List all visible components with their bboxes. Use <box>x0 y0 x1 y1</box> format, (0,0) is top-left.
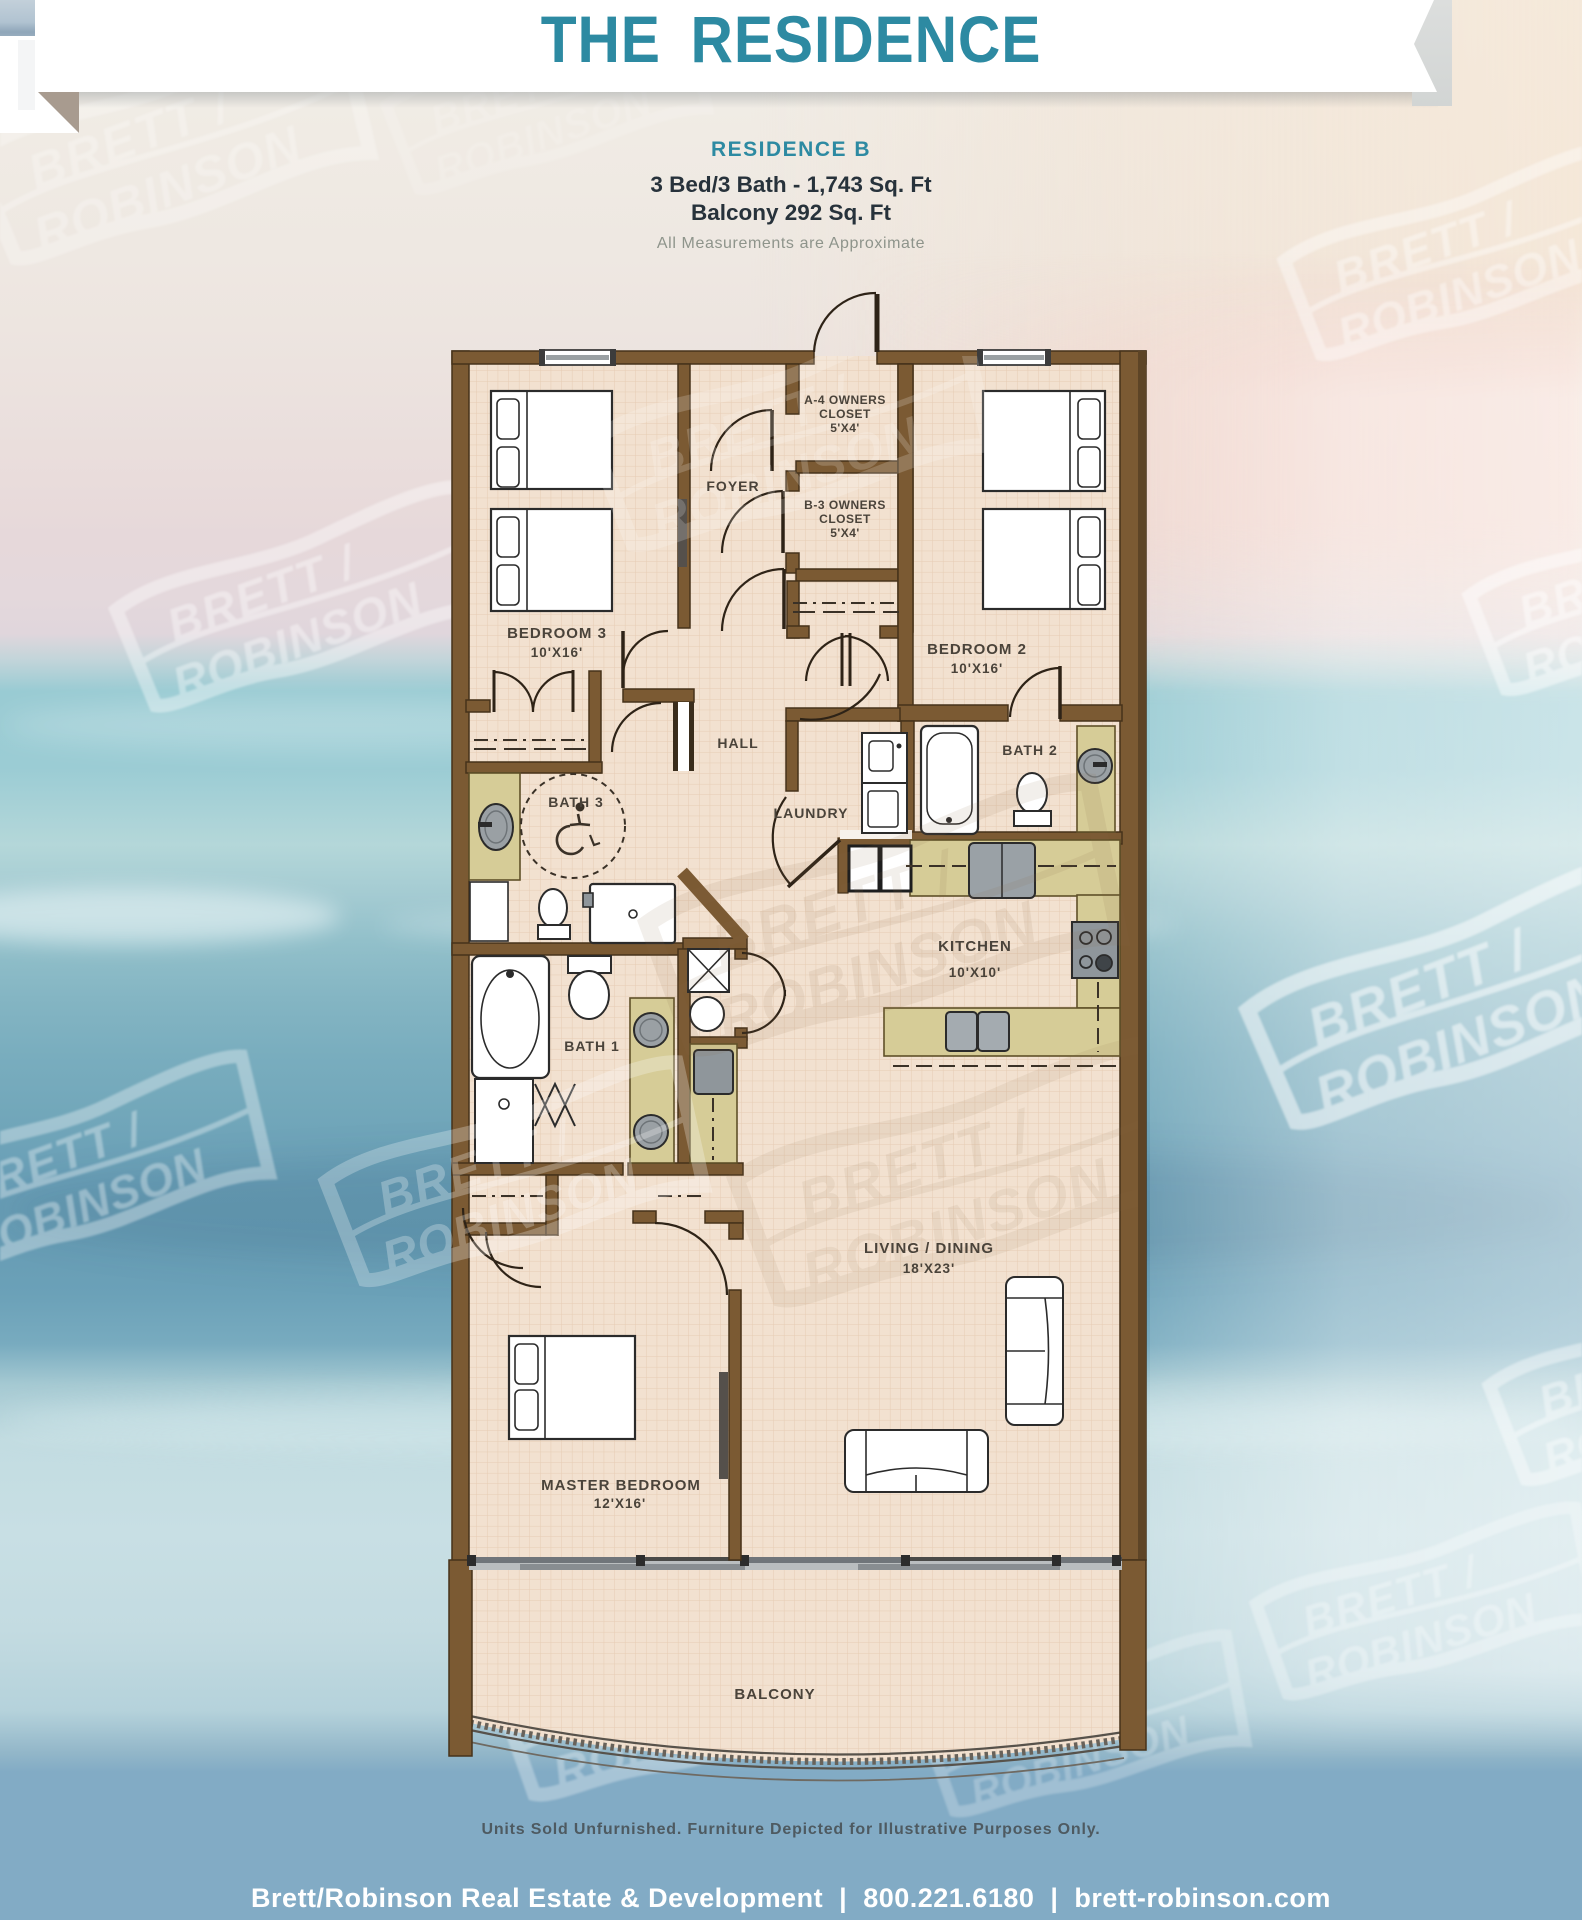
svg-text:BATH 3: BATH 3 <box>548 794 604 810</box>
svg-text:B-3 OWNERS: B-3 OWNERS <box>804 498 886 512</box>
svg-text:10'X16': 10'X16' <box>531 645 583 660</box>
svg-text:BATH 1: BATH 1 <box>564 1038 620 1054</box>
svg-text:HALL: HALL <box>717 735 758 751</box>
svg-text:CLOSET: CLOSET <box>819 512 871 526</box>
svg-text:5'X4': 5'X4' <box>830 421 860 435</box>
svg-text:MASTER BEDROOM: MASTER BEDROOM <box>541 1477 701 1494</box>
svg-text:LAUNDRY: LAUNDRY <box>774 805 849 821</box>
svg-text:BALCONY: BALCONY <box>734 1686 815 1703</box>
svg-text:BATH 2: BATH 2 <box>1002 742 1058 758</box>
svg-text:FOYER: FOYER <box>706 478 759 494</box>
svg-text:BEDROOM 3: BEDROOM 3 <box>507 625 607 642</box>
svg-text:12'X16': 12'X16' <box>594 1496 646 1511</box>
svg-text:BEDROOM 2: BEDROOM 2 <box>927 641 1027 658</box>
svg-text:A-4 OWNERS: A-4 OWNERS <box>804 393 886 407</box>
svg-text:10'X16': 10'X16' <box>951 661 1003 676</box>
svg-text:18'X23': 18'X23' <box>903 1261 955 1276</box>
svg-text:LIVING / DINING: LIVING / DINING <box>864 1240 994 1257</box>
svg-text:5'X4': 5'X4' <box>830 526 860 540</box>
svg-text:CLOSET: CLOSET <box>819 407 871 421</box>
svg-text:10'X10': 10'X10' <box>949 965 1001 980</box>
svg-text:KITCHEN: KITCHEN <box>938 938 1012 955</box>
